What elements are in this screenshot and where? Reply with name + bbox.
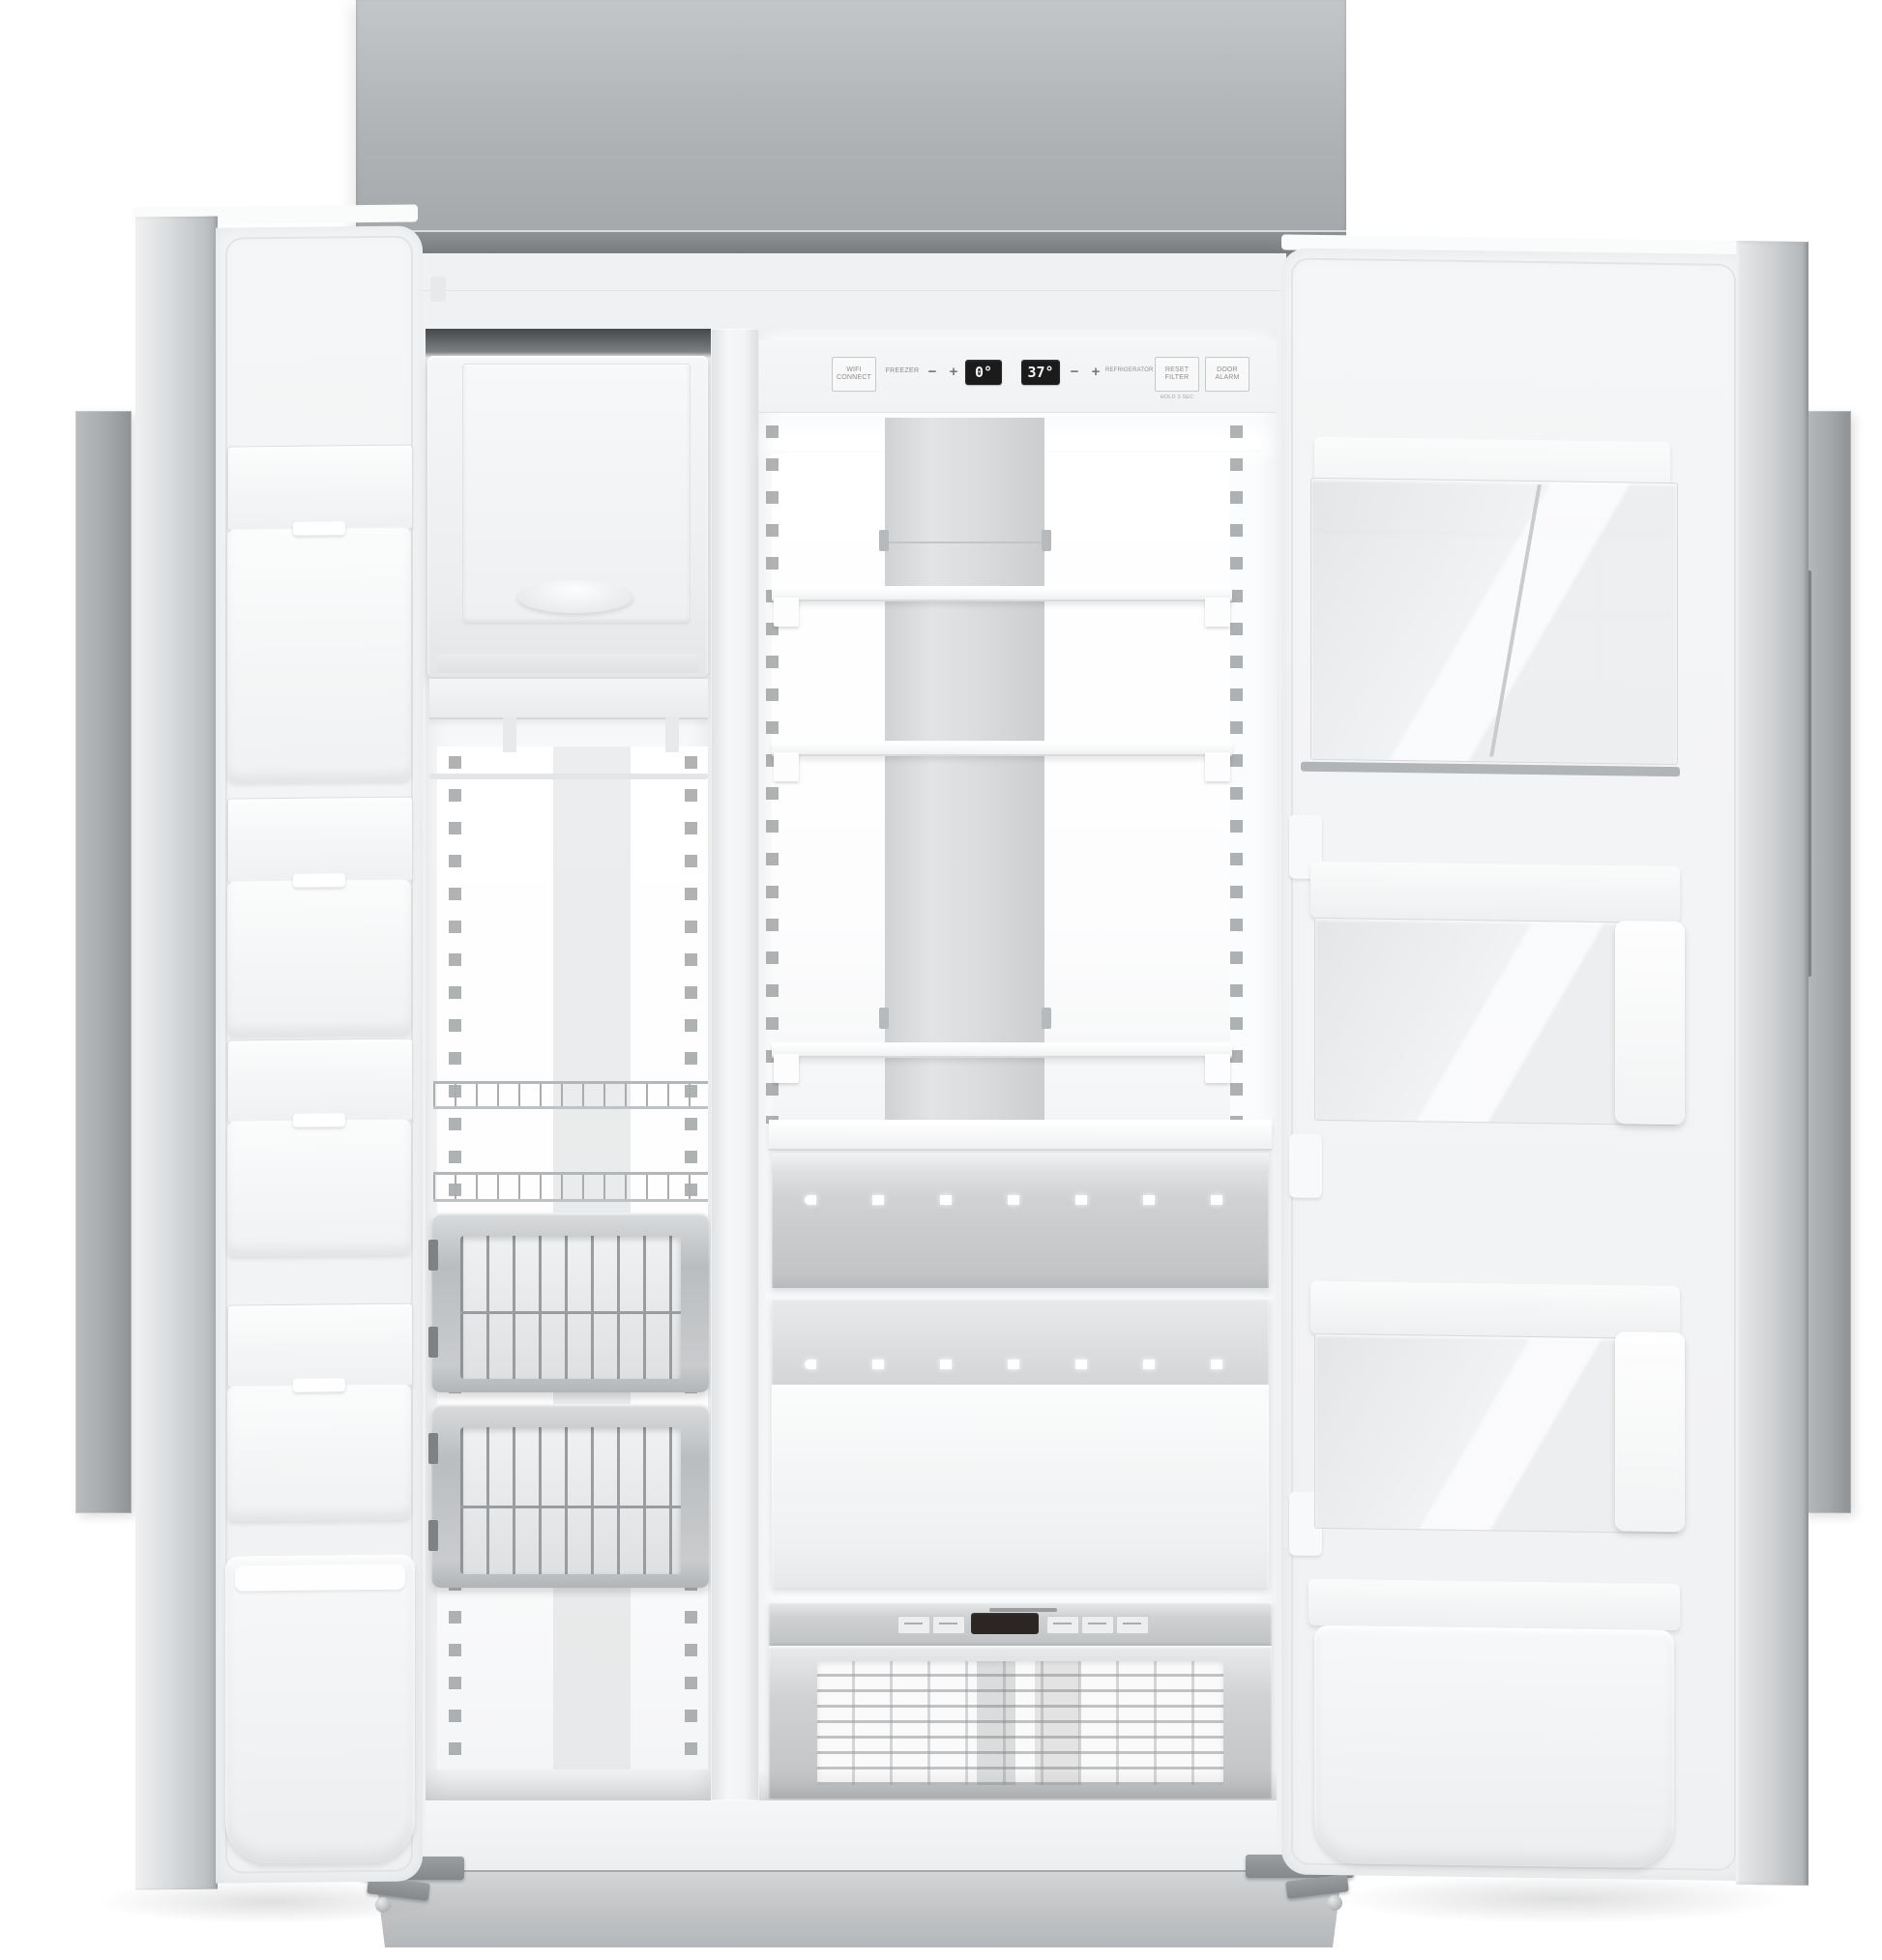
door-alarm-line1: DOOR bbox=[1206, 366, 1249, 374]
band-seam bbox=[885, 541, 1044, 543]
refrigerator-door-steel-edge bbox=[1736, 241, 1808, 1886]
fridge-drawer-1-led-lights bbox=[805, 1195, 1236, 1205]
drawer-3-grille-dark-col2 bbox=[1035, 1661, 1079, 1785]
reset-filter-button[interactable]: RESET FILTER bbox=[1155, 357, 1199, 392]
freezer-door-bin-1 bbox=[227, 528, 411, 783]
drawer-3-button-2[interactable] bbox=[932, 1616, 965, 1634]
hinge-cover-tab bbox=[430, 277, 446, 302]
refrigerator-door-bucket bbox=[1309, 1579, 1680, 1870]
drawer-3-display bbox=[971, 1613, 1039, 1634]
fridge-backwall-right bbox=[1044, 454, 1230, 1124]
freezer-frame-leg-left bbox=[503, 717, 516, 752]
freezer-door-bin-2 bbox=[227, 880, 411, 1037]
freezer-temp-display: 0° bbox=[965, 360, 1002, 385]
freezer-plus-button[interactable]: + bbox=[945, 364, 962, 381]
fridge-shelf-1-bracket-right bbox=[1205, 598, 1230, 627]
freezer-frame-rail bbox=[429, 774, 708, 779]
freezer-basket-lower-hinge2 bbox=[428, 1520, 438, 1551]
drawer-top-frame bbox=[769, 1120, 1272, 1151]
door-alarm-button[interactable]: DOOR ALARM bbox=[1205, 357, 1250, 392]
freezer-door-bottom-bin-rim bbox=[235, 1565, 405, 1592]
refrigerator-door bbox=[1281, 234, 1808, 1895]
wifi-connect-button[interactable]: WIFI CONNECT bbox=[832, 357, 876, 392]
fridge-floor-shadow bbox=[759, 1770, 1277, 1800]
band-clip-tl bbox=[879, 530, 889, 551]
freezer-door-bin-3-grip bbox=[293, 1113, 345, 1127]
fridge-backwall-left bbox=[772, 454, 885, 1124]
fridge-shelf-1 bbox=[772, 586, 1232, 601]
freezer-basket-upper-hinge bbox=[428, 1240, 438, 1271]
freezer-basket-upper-hinge2 bbox=[428, 1327, 438, 1358]
base-front-strip bbox=[426, 1800, 1277, 1870]
band-clip-tr bbox=[1042, 530, 1051, 551]
refrigerator-door-bin-2 bbox=[1310, 1281, 1680, 1536]
freezer-basket-lower-wires bbox=[460, 1427, 681, 1574]
freezer-door-bin-4 bbox=[227, 1385, 411, 1522]
freezer-basket-lower bbox=[431, 1404, 710, 1588]
freezer-basket-lower-hinge bbox=[428, 1433, 438, 1464]
fridge-shelf-3 bbox=[772, 1042, 1232, 1058]
freezer-floor-shadow bbox=[426, 1768, 711, 1800]
freezer-door bbox=[92, 204, 426, 1905]
fridge-shelf-2-bracket-right bbox=[1205, 752, 1230, 781]
freezer-basket-upper-wires bbox=[460, 1236, 681, 1379]
freezer-label: FREEZER bbox=[883, 367, 922, 375]
kickplate bbox=[375, 1870, 1342, 1947]
freezer-door-bin-4-grip bbox=[293, 1378, 345, 1392]
fridge-center-steel-band bbox=[885, 418, 1044, 1131]
dairy-compartment-lid bbox=[1310, 478, 1678, 765]
fridge-drawer-1-rim bbox=[772, 1153, 1269, 1174]
freezer-basket-lower-rail bbox=[460, 1506, 681, 1508]
drawer-3-panel-title-bar bbox=[989, 1608, 1057, 1612]
freezer-shelf-frame bbox=[429, 679, 708, 719]
freezer-door-bin-lip-3 bbox=[227, 1039, 413, 1124]
reset-filter-hint: HOLD 3 SEC bbox=[1155, 395, 1199, 400]
drawer-3-vent-grille bbox=[817, 1661, 1223, 1785]
fridge-shelf-2 bbox=[772, 741, 1232, 756]
freezer-door-bin-3 bbox=[227, 1120, 411, 1257]
fridge-drawer-1 bbox=[772, 1153, 1269, 1288]
fridge-shelf-2-bracket-left bbox=[774, 752, 799, 781]
freezer-door-bin-2-grip bbox=[293, 873, 345, 888]
freezer-door-steel-edge bbox=[135, 217, 218, 1890]
freezer-door-bin-lip-1 bbox=[227, 445, 413, 532]
wifi-label-line2: CONNECT bbox=[833, 374, 875, 382]
fridge-drawer-2-front bbox=[772, 1385, 1269, 1588]
door-bin-1-handle bbox=[1615, 921, 1685, 1125]
dairy-compartment bbox=[1310, 433, 1676, 763]
freezer-wire-shelf-1 bbox=[433, 1081, 708, 1109]
freezer-wire-shelf-2 bbox=[433, 1172, 708, 1202]
freezer-basket-upper bbox=[431, 1213, 710, 1392]
freezer-door-bin-lip-2 bbox=[227, 797, 413, 884]
top-vent-grille bbox=[356, 0, 1346, 263]
freezer-door-bin-lip-4 bbox=[227, 1303, 413, 1389]
fridge-shelf-3-bracket-left bbox=[774, 1054, 799, 1083]
band-clip-br bbox=[1042, 1008, 1051, 1029]
band-clip-bl bbox=[879, 1008, 889, 1029]
fridge-drawer-2-led-lights bbox=[805, 1360, 1236, 1369]
fridge-shelf-1-bracket-left bbox=[774, 598, 799, 627]
fridge-shelf-3-bracket-right bbox=[1205, 1054, 1230, 1083]
fridge-drawer-2 bbox=[772, 1298, 1269, 1588]
right-door-hinge-pin bbox=[1327, 1895, 1342, 1911]
freezer-frame-leg-right bbox=[665, 717, 679, 752]
door-bin-2-handle bbox=[1615, 1331, 1685, 1532]
drawer-3-button-3[interactable] bbox=[1046, 1616, 1079, 1634]
wifi-label-line1: WIFI bbox=[833, 366, 875, 374]
cabinet-top-seam bbox=[416, 290, 1286, 291]
door-bin-1-top-bar bbox=[1310, 862, 1680, 922]
refrigerator-label: REFRIGERATOR bbox=[1105, 367, 1152, 374]
freezer-top-shadow bbox=[426, 329, 711, 358]
ice-maker-lower-lip bbox=[437, 654, 698, 673]
door-bin-2-top-bar bbox=[1310, 1281, 1680, 1338]
refrigerator-product-photo: WIFI CONNECT FREEZER − + 0° 37° − + REFR… bbox=[0, 0, 1882, 1960]
door-alarm-line2: ALARM bbox=[1206, 374, 1249, 382]
ice-maker-flap-handle bbox=[517, 580, 633, 613]
drawer-3-button-1[interactable] bbox=[897, 1616, 930, 1634]
drawer-3-button-4[interactable] bbox=[1081, 1616, 1114, 1634]
door-liner-pad-2 bbox=[1289, 1134, 1322, 1198]
freezer-minus-button[interactable]: − bbox=[924, 364, 941, 381]
refrigerator-plus-button[interactable]: + bbox=[1087, 364, 1104, 381]
drawer-3-button-5[interactable] bbox=[1116, 1616, 1149, 1634]
refrigerator-door-bin-1 bbox=[1310, 862, 1680, 1127]
drawer-3-grille-dark-col1 bbox=[977, 1661, 1015, 1785]
door-bucket-top-bar bbox=[1309, 1579, 1680, 1630]
freezer-door-bottom-bin bbox=[225, 1555, 415, 1864]
temperature-control-panel: WIFI CONNECT FREEZER − + 0° 37° − + REFR… bbox=[759, 340, 1277, 413]
refrigerator-temp-display: 37° bbox=[1021, 360, 1060, 385]
freezer-door-bin-1-grip bbox=[293, 521, 345, 536]
reset-filter-line1: RESET bbox=[1156, 366, 1198, 374]
center-divider bbox=[711, 329, 759, 1800]
door-bucket-body bbox=[1314, 1625, 1674, 1868]
reset-filter-line2: FILTER bbox=[1156, 374, 1198, 382]
fridge-shelf-rail-right bbox=[1230, 425, 1243, 1124]
freezer-basket-upper-rail bbox=[460, 1311, 681, 1314]
refrigerator-minus-button[interactable]: − bbox=[1066, 364, 1083, 381]
